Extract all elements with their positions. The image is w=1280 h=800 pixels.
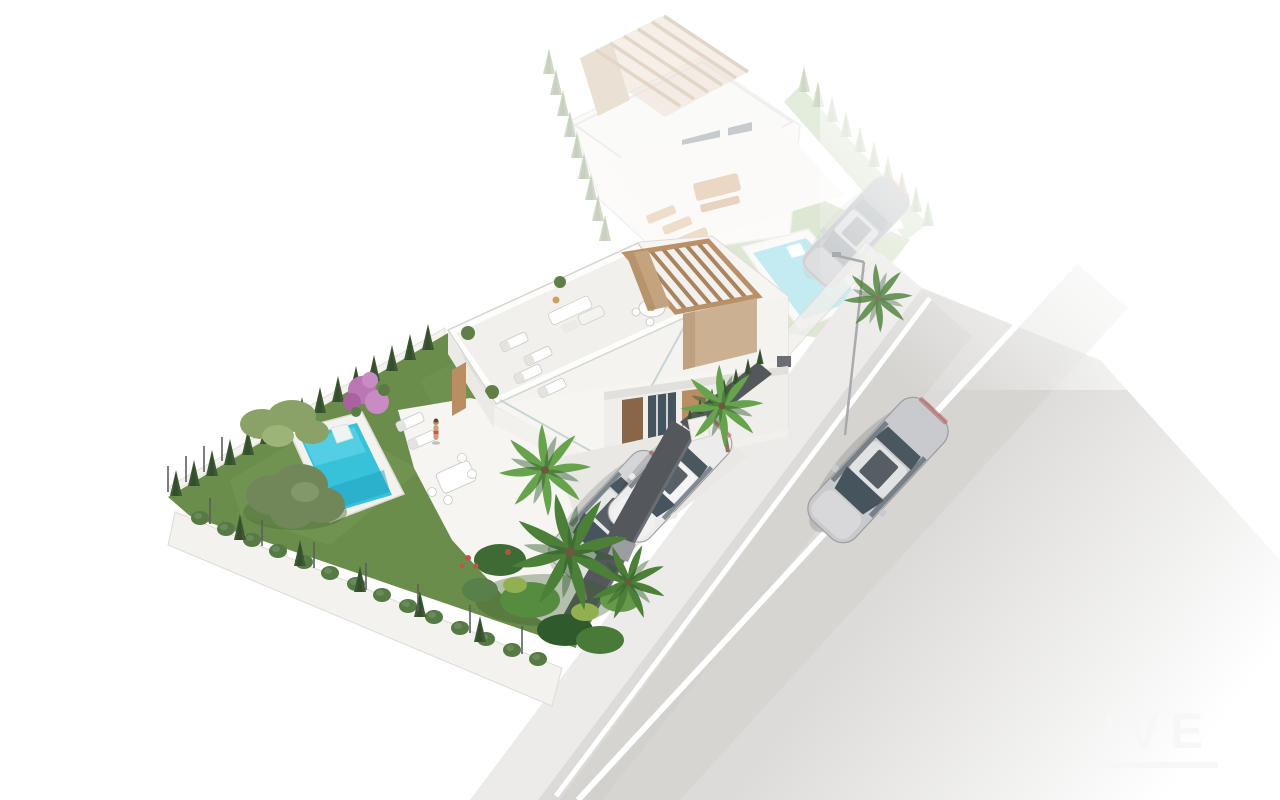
side-wood-slats xyxy=(452,362,466,416)
roof-vent xyxy=(777,356,791,367)
watermark-tagline-bar xyxy=(1098,762,1218,768)
villa-render: IVE xyxy=(0,0,1280,800)
render-canvas: IVE xyxy=(0,0,1280,800)
watermark-text: IVE xyxy=(1103,703,1214,759)
